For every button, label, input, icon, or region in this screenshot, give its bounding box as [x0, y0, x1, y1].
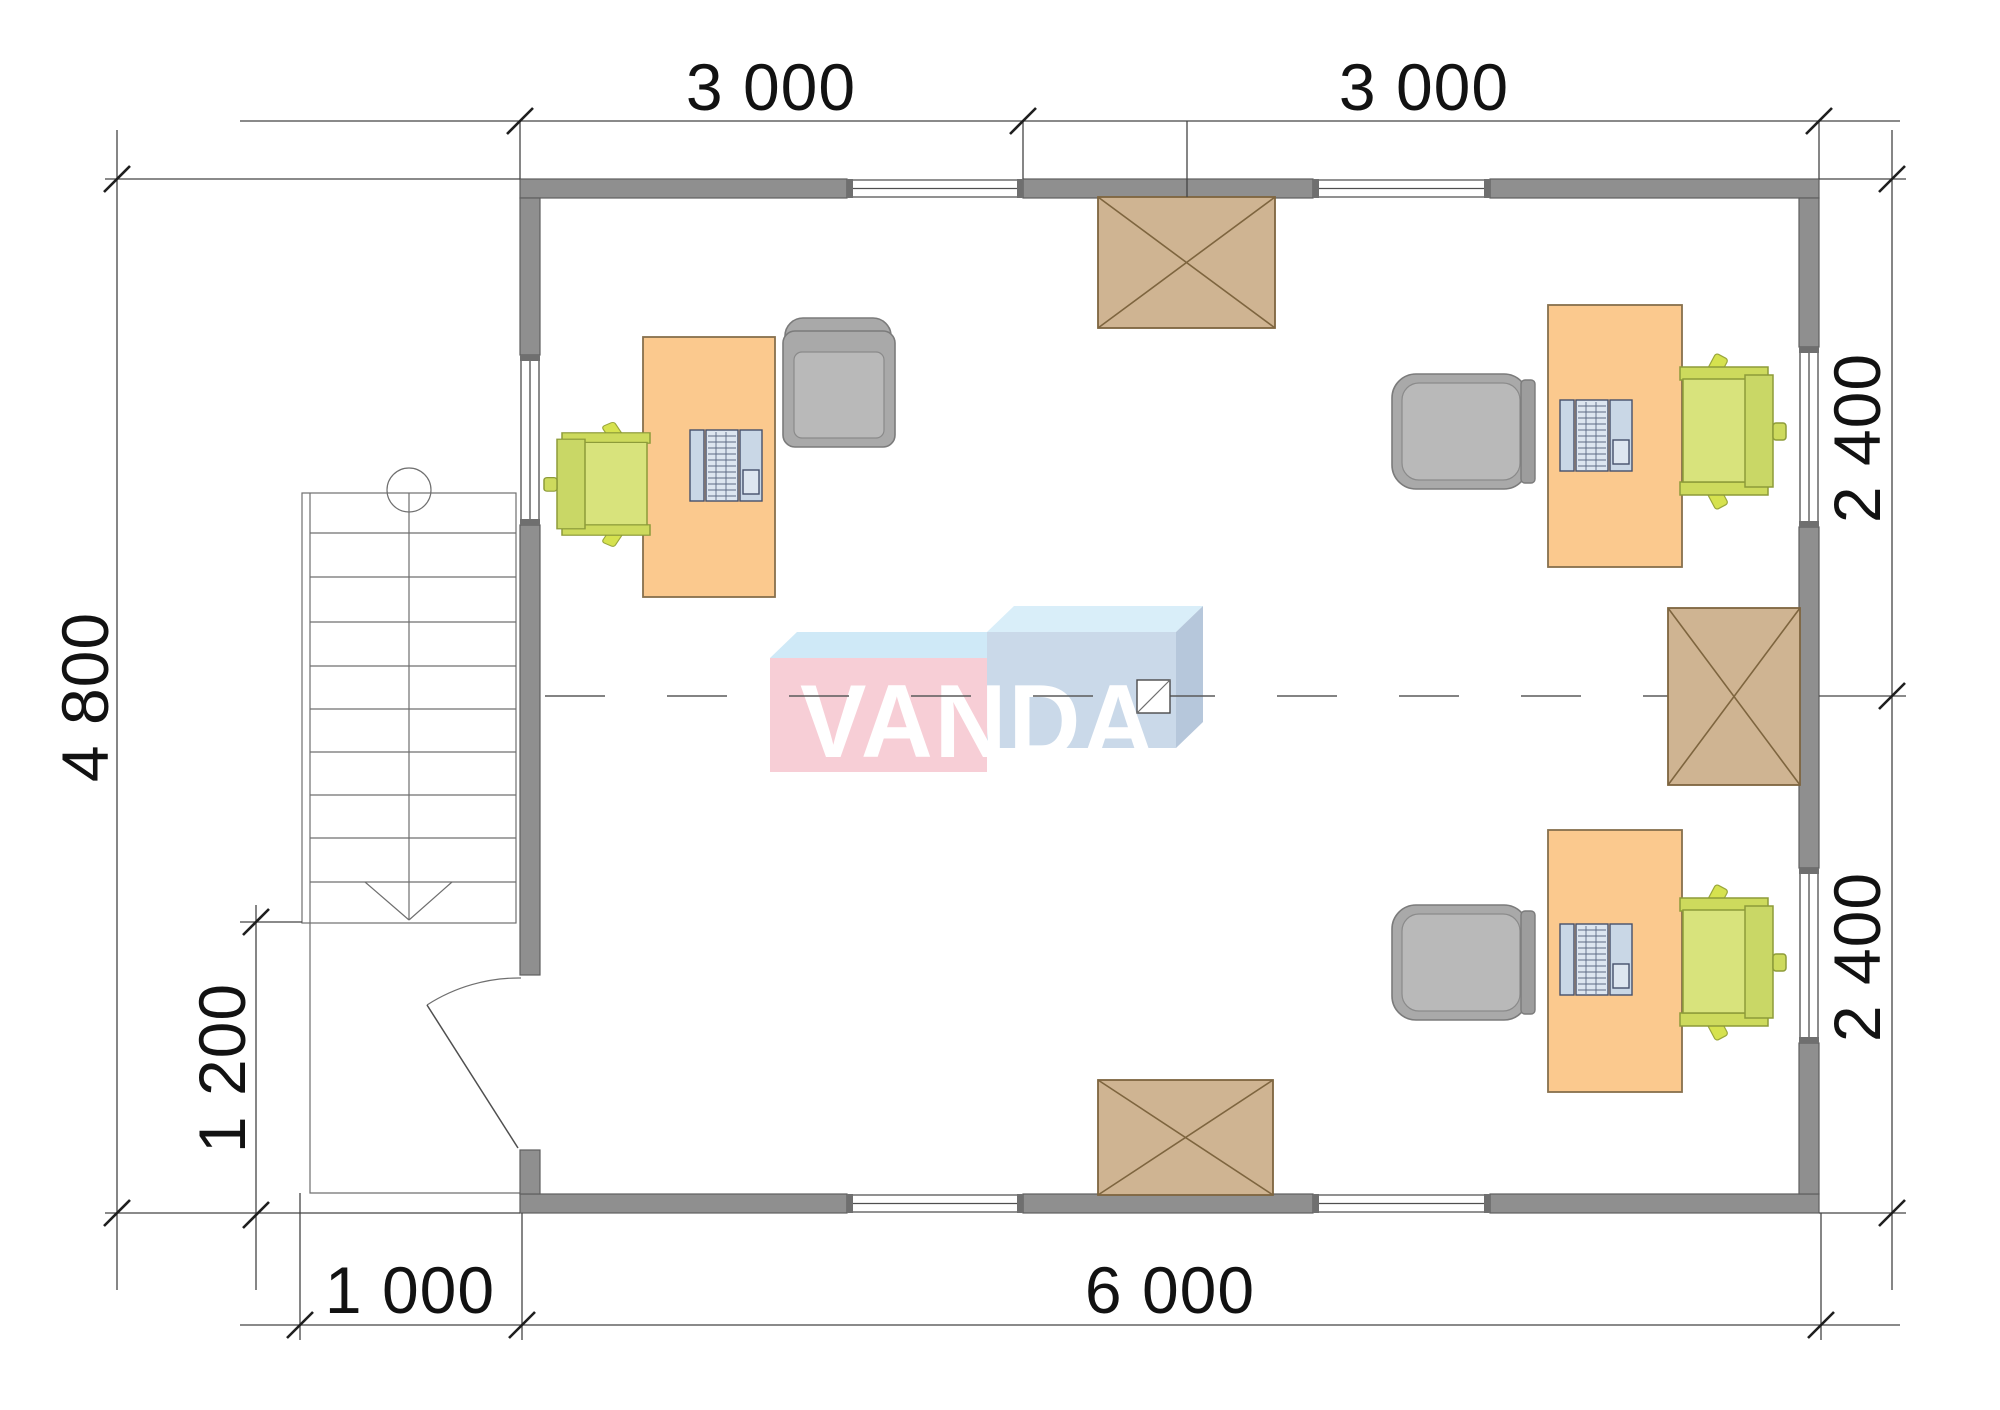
laptop	[1560, 924, 1632, 995]
wall-right-segment	[1799, 198, 1819, 347]
window-right-1	[1799, 347, 1819, 527]
window-bottom-1	[847, 1194, 1023, 1213]
wall-top-segment	[1490, 179, 1819, 198]
logo-text: VANDA	[800, 664, 1156, 780]
dimension-label-top-right: 3 000	[1339, 50, 1509, 124]
window-top-2	[1313, 179, 1490, 198]
dimension-top: 3 000 3 000	[240, 50, 1900, 134]
door-swing-arc	[427, 978, 521, 1005]
dimension-label-right-lower: 2 400	[1820, 872, 1894, 1042]
roof-hatch-right	[1668, 608, 1800, 785]
wall-bottom-segment	[1490, 1194, 1819, 1213]
dimension-label-left-4800: 4 800	[48, 612, 122, 782]
office-chair-green	[1680, 353, 1786, 510]
logo-box-pink-top	[770, 632, 1014, 658]
floor-plan-page: VANDA	[0, 0, 2000, 1410]
workstation-top-left	[544, 318, 895, 597]
wall-right-segment	[1799, 527, 1819, 868]
guest-chair-gray	[1392, 374, 1535, 489]
door-leaf	[427, 1005, 518, 1148]
entry-door	[427, 978, 521, 1148]
window-left	[520, 355, 540, 525]
wall-top-segment	[1023, 179, 1313, 198]
dimension-label-top-left: 3 000	[686, 50, 856, 124]
wall-left-segment	[520, 198, 540, 355]
roof-hatch-bottom	[1098, 1080, 1273, 1195]
office-chair-green	[544, 422, 650, 548]
office-chair-green	[1680, 884, 1786, 1041]
workstation-bottom-right	[1392, 830, 1786, 1092]
dimension-label-bottom-1000: 1 000	[325, 1253, 495, 1327]
wall-bottom-segment	[1023, 1194, 1313, 1213]
dimension-label-bottom-6000: 6 000	[1085, 1253, 1255, 1327]
guest-armchair-gray	[783, 318, 895, 447]
floor-plan-drawing: VANDA	[0, 0, 2000, 1410]
window-right-2	[1799, 868, 1819, 1043]
dimension-bottom: 1 000 6 000	[240, 1253, 1900, 1338]
staircase	[302, 468, 516, 923]
dimension-left: 4 800	[48, 130, 130, 1290]
laptop	[1560, 400, 1632, 471]
wall-top-segment	[520, 179, 847, 198]
dimension-label-left-1200: 1 200	[185, 983, 259, 1153]
workstation-top-right	[1392, 305, 1786, 567]
wall-left-segment	[520, 1150, 540, 1194]
roof-hatch-top	[1098, 197, 1275, 328]
wall-right-segment	[1799, 1043, 1819, 1194]
porch-outline	[310, 923, 520, 1193]
guest-chair-gray	[1392, 905, 1535, 1020]
dimension-right: 2 400 2 400	[1820, 130, 1905, 1290]
logo-box-blue-top	[987, 606, 1203, 632]
dimension-label-right-upper: 2 400	[1820, 353, 1894, 523]
laptop	[690, 430, 762, 501]
wall-left-segment	[520, 525, 540, 975]
wall-bottom-segment	[520, 1194, 847, 1213]
window-bottom-2	[1313, 1194, 1490, 1213]
stair-treads	[310, 533, 516, 882]
axis-marker-square	[1137, 680, 1170, 713]
dimension-porch-height: 1 200	[185, 905, 269, 1290]
window-top-1	[847, 179, 1023, 198]
